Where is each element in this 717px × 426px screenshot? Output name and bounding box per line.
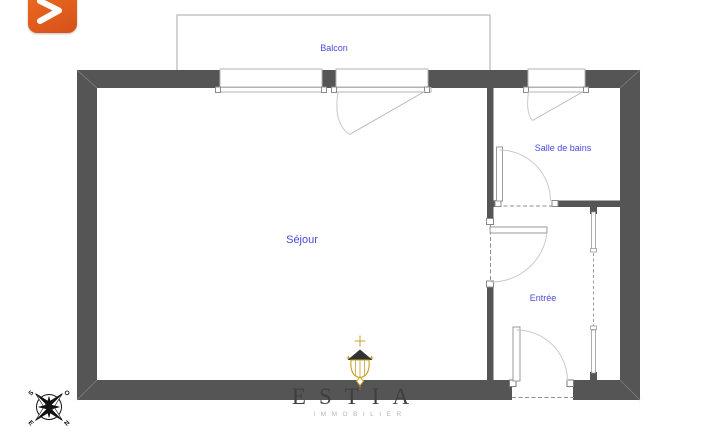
bathroom-door-swing bbox=[495, 147, 558, 207]
compass-west-label: O bbox=[62, 389, 71, 398]
interior-door-swing bbox=[487, 219, 548, 288]
chevron-right-plus-icon bbox=[28, 0, 77, 33]
estia-logo-badge bbox=[28, 0, 77, 33]
compass-north-label: N bbox=[63, 419, 71, 426]
entry-door-swing bbox=[510, 327, 574, 387]
bathroom-window bbox=[524, 69, 589, 121]
floorplan-page: S O N E Balcon Séjour Salle de bains Ent… bbox=[0, 0, 717, 426]
watermark-brand: ESTIA bbox=[292, 384, 422, 410]
closet-partition bbox=[591, 212, 597, 373]
outer-walls bbox=[77, 70, 640, 400]
window-sejour bbox=[216, 69, 327, 93]
compass-rose-icon: S O N E bbox=[22, 380, 76, 426]
interior-walls bbox=[487, 88, 620, 380]
balcony-outline bbox=[177, 15, 490, 71]
floorplan-drawing: S O N E bbox=[0, 0, 717, 426]
threshold-dashes bbox=[491, 206, 575, 398]
watermark-tagline: IMMOBILIER bbox=[313, 411, 406, 418]
balcony-door bbox=[332, 69, 432, 135]
compass-south-label: S bbox=[27, 389, 35, 397]
compass-east-label: E bbox=[27, 419, 35, 426]
